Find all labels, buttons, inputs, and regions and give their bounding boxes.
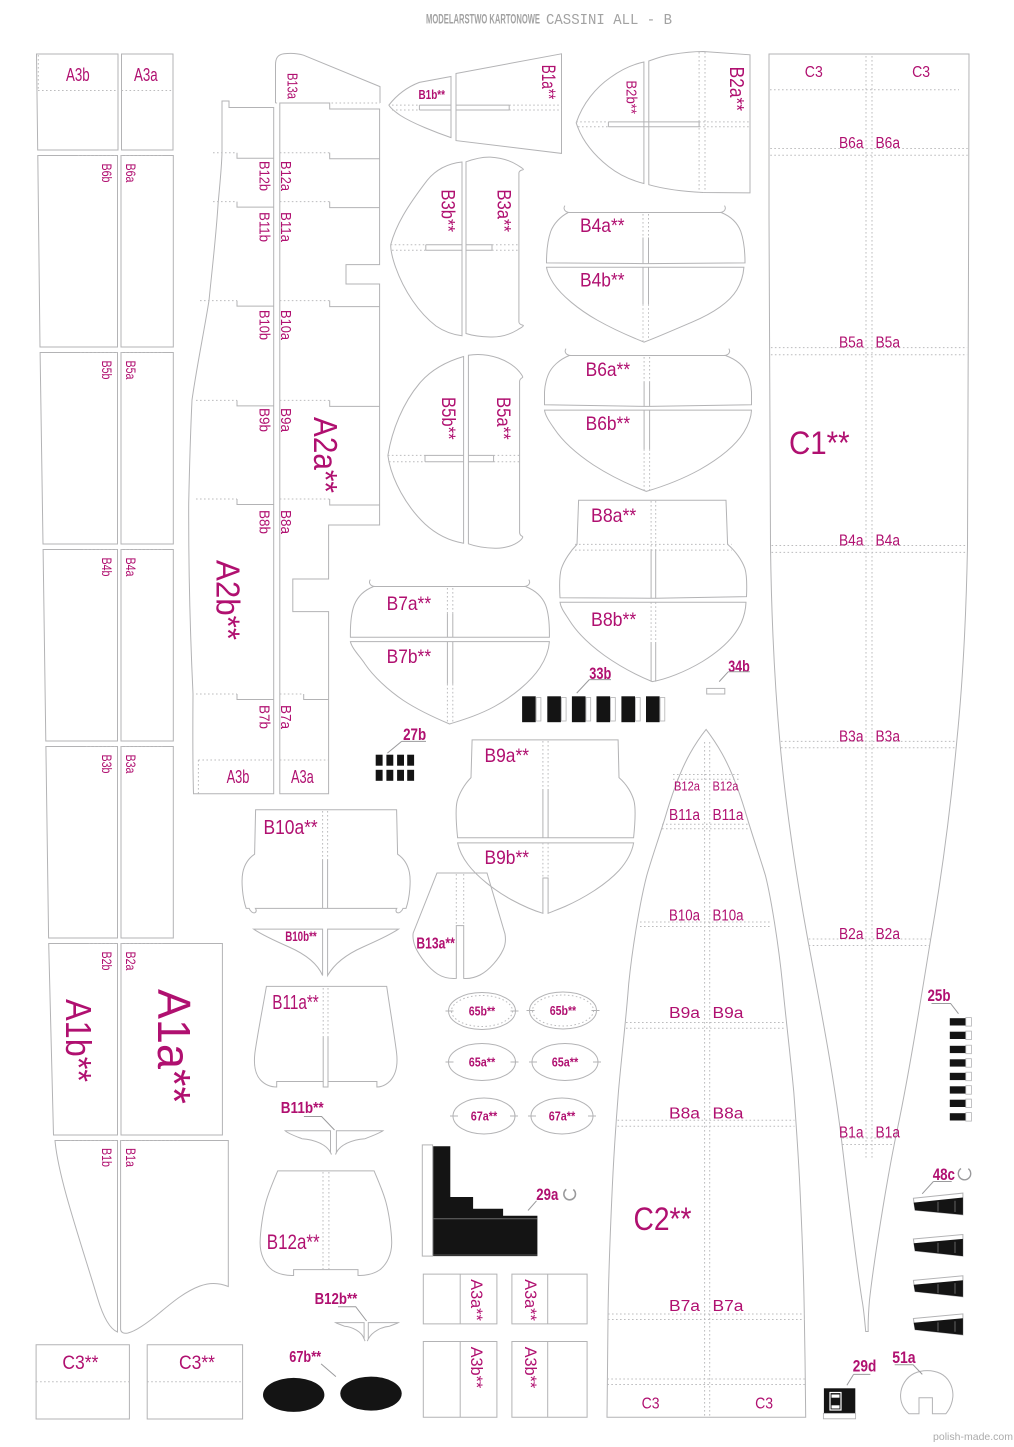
svg-text:A2b**: A2b** bbox=[210, 560, 247, 640]
svg-text:B5a: B5a bbox=[876, 335, 901, 352]
svg-text:B13a**: B13a** bbox=[416, 936, 455, 953]
svg-text:CASSINI ALL - B: CASSINI ALL - B bbox=[546, 12, 672, 29]
svg-text:B9b**: B9b** bbox=[485, 847, 530, 869]
svg-text:B2a: B2a bbox=[123, 952, 138, 971]
svg-text:67b**: 67b** bbox=[289, 1349, 322, 1366]
svg-text:65a**: 65a** bbox=[552, 1055, 579, 1070]
svg-text:C3: C3 bbox=[642, 1396, 660, 1413]
svg-text:B12a: B12a bbox=[277, 161, 294, 192]
svg-text:B2a: B2a bbox=[839, 926, 864, 943]
svg-text:C2**: C2** bbox=[634, 1201, 692, 1237]
svg-text:B12b: B12b bbox=[256, 161, 273, 191]
svg-text:B2b**: B2b** bbox=[623, 80, 640, 114]
svg-text:A3a: A3a bbox=[134, 64, 158, 85]
svg-text:B2a: B2a bbox=[876, 926, 901, 943]
svg-text:B13a: B13a bbox=[284, 73, 301, 99]
svg-text:B6a: B6a bbox=[839, 135, 864, 152]
svg-text:B3a: B3a bbox=[876, 728, 901, 745]
svg-text:B6a: B6a bbox=[123, 164, 138, 183]
svg-text:C1**: C1** bbox=[789, 425, 850, 461]
svg-text:65b**: 65b** bbox=[469, 1004, 496, 1019]
svg-text:B10a: B10a bbox=[669, 908, 700, 925]
svg-text:B6a**: B6a** bbox=[586, 359, 631, 381]
svg-text:B4a: B4a bbox=[123, 558, 138, 577]
svg-text:67a**: 67a** bbox=[549, 1109, 576, 1124]
svg-text:A3a**: A3a** bbox=[521, 1279, 540, 1321]
svg-text:B10b: B10b bbox=[256, 310, 273, 340]
svg-text:B7b: B7b bbox=[256, 705, 273, 729]
svg-text:C3: C3 bbox=[912, 64, 930, 81]
svg-text:B6a: B6a bbox=[876, 135, 901, 152]
svg-text:C3**: C3** bbox=[179, 1352, 215, 1374]
svg-text:B12b**: B12b** bbox=[315, 1291, 359, 1308]
svg-text:B11b**: B11b** bbox=[281, 1100, 325, 1117]
svg-text:B4a**: B4a** bbox=[580, 215, 625, 237]
svg-text:B4b: B4b bbox=[99, 558, 114, 577]
svg-text:B5b: B5b bbox=[99, 361, 114, 380]
svg-text:B1b**: B1b** bbox=[419, 88, 446, 102]
svg-text:B1a**: B1a** bbox=[537, 65, 558, 100]
svg-text:25b: 25b bbox=[928, 986, 951, 1005]
svg-text:polish-made.com: polish-made.com bbox=[933, 1431, 1013, 1443]
svg-text:B9a: B9a bbox=[277, 408, 294, 433]
svg-text:B8a**: B8a** bbox=[591, 505, 637, 527]
svg-text:B11a: B11a bbox=[669, 807, 700, 824]
svg-text:34b: 34b bbox=[728, 657, 750, 676]
svg-text:B4a: B4a bbox=[839, 532, 864, 549]
svg-text:B11a**: B11a** bbox=[272, 991, 318, 1014]
svg-text:B9a**: B9a** bbox=[485, 745, 530, 767]
svg-text:B10a: B10a bbox=[713, 908, 744, 925]
svg-text:B5b**: B5b** bbox=[437, 397, 459, 440]
svg-text:A3b**: A3b** bbox=[521, 1347, 540, 1389]
svg-text:67a**: 67a** bbox=[471, 1109, 498, 1124]
svg-text:65a**: 65a** bbox=[469, 1055, 496, 1070]
svg-text:B6b: B6b bbox=[99, 164, 114, 183]
svg-text:B7a**: B7a** bbox=[387, 593, 432, 615]
svg-text:B1a: B1a bbox=[123, 1148, 138, 1167]
svg-text:A3a: A3a bbox=[291, 767, 315, 787]
svg-text:65b**: 65b** bbox=[550, 1003, 577, 1018]
svg-text:B3a**: B3a** bbox=[493, 189, 515, 232]
svg-text:51a: 51a bbox=[892, 1348, 916, 1367]
svg-text:B12a: B12a bbox=[713, 780, 739, 794]
svg-text:B4a: B4a bbox=[876, 532, 901, 549]
svg-text:B1b: B1b bbox=[99, 1148, 114, 1167]
svg-text:B8a: B8a bbox=[277, 510, 294, 535]
svg-text:C3: C3 bbox=[755, 1396, 773, 1413]
svg-text:A1a**: A1a** bbox=[148, 989, 200, 1104]
svg-text:B2b: B2b bbox=[99, 952, 114, 971]
svg-text:29d: 29d bbox=[853, 1357, 877, 1376]
svg-text:B7a: B7a bbox=[669, 1298, 700, 1315]
svg-text:29a: 29a bbox=[536, 1185, 558, 1204]
svg-text:B11b: B11b bbox=[256, 212, 273, 242]
svg-text:B3a: B3a bbox=[123, 755, 138, 774]
svg-text:33b: 33b bbox=[589, 664, 611, 683]
svg-text:C3: C3 bbox=[805, 64, 823, 81]
svg-text:B8a: B8a bbox=[713, 1106, 744, 1123]
svg-text:B3b: B3b bbox=[99, 755, 114, 774]
svg-text:B1a: B1a bbox=[839, 1125, 864, 1142]
svg-text:A1b**: A1b** bbox=[58, 999, 99, 1082]
svg-text:A3b: A3b bbox=[227, 767, 250, 787]
svg-text:A3b: A3b bbox=[66, 64, 90, 85]
svg-text:B3a: B3a bbox=[839, 728, 864, 745]
svg-text:B5a: B5a bbox=[839, 335, 864, 352]
svg-text:MODELARSTWO KARTONOWE: MODELARSTWO KARTONOWE bbox=[426, 12, 540, 27]
svg-text:B11a: B11a bbox=[713, 807, 744, 824]
svg-text:B12a: B12a bbox=[674, 780, 700, 794]
svg-text:A3a**: A3a** bbox=[467, 1279, 486, 1321]
svg-text:B2a**: B2a** bbox=[725, 67, 747, 112]
svg-text:B5a**: B5a** bbox=[492, 397, 514, 440]
svg-text:B5a: B5a bbox=[123, 361, 138, 380]
svg-text:C3**: C3** bbox=[62, 1352, 98, 1374]
svg-text:A2a**: A2a** bbox=[307, 417, 344, 493]
svg-text:B11a: B11a bbox=[277, 212, 294, 243]
svg-text:B10a**: B10a** bbox=[264, 816, 318, 839]
svg-text:B4b**: B4b** bbox=[580, 270, 625, 292]
svg-text:B6b**: B6b** bbox=[586, 413, 631, 435]
svg-text:B12a**: B12a** bbox=[267, 1231, 320, 1254]
svg-text:B10b**: B10b** bbox=[285, 929, 317, 944]
svg-text:B1a: B1a bbox=[876, 1125, 901, 1142]
svg-text:B7a: B7a bbox=[277, 705, 294, 730]
svg-text:B7a: B7a bbox=[713, 1298, 744, 1315]
svg-text:B3b**: B3b** bbox=[437, 189, 459, 232]
svg-text:B8b**: B8b** bbox=[591, 609, 637, 631]
svg-text:B9b: B9b bbox=[256, 408, 273, 432]
svg-text:B8a: B8a bbox=[669, 1106, 700, 1123]
svg-text:B7b**: B7b** bbox=[387, 646, 432, 668]
svg-text:A3b**: A3b** bbox=[467, 1347, 486, 1389]
svg-text:B10a: B10a bbox=[277, 310, 294, 341]
svg-text:B8b: B8b bbox=[256, 510, 273, 534]
svg-text:B9a: B9a bbox=[713, 1005, 744, 1022]
svg-text:B9a: B9a bbox=[669, 1005, 700, 1022]
